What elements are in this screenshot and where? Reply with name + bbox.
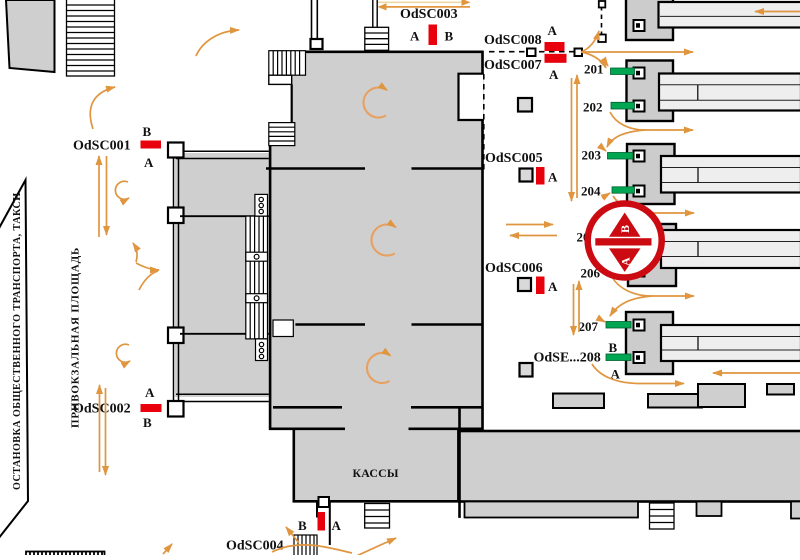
svg-text:A: A — [548, 279, 558, 294]
svg-text:A: A — [548, 23, 558, 38]
svg-text:A: A — [145, 385, 155, 400]
svg-text:OdSC008: OdSC008 — [484, 33, 542, 48]
svg-text:203: 203 — [582, 148, 602, 163]
svg-text:OdSC005: OdSC005 — [485, 151, 543, 166]
svg-text:OdSC006: OdSC006 — [485, 261, 543, 276]
svg-text:B: B — [445, 29, 454, 44]
svg-text:ОСТАНОВКА ОБЩЕСТВЕННОГО ТРАНСП: ОСТАНОВКА ОБЩЕСТВЕННОГО ТРАНСПОРТА, ТАКС… — [12, 192, 23, 490]
svg-text:OdSC007: OdSC007 — [484, 58, 542, 73]
svg-text:OdSE...208: OdSE...208 — [534, 351, 601, 366]
svg-text:207: 207 — [579, 319, 599, 334]
svg-text:B: B — [618, 225, 632, 233]
svg-text:201: 201 — [584, 62, 604, 77]
svg-text:B: B — [609, 340, 618, 355]
svg-text:A: A — [619, 257, 633, 266]
svg-text:B: B — [143, 415, 152, 430]
svg-text:КАССЫ: КАССЫ — [353, 466, 399, 480]
svg-text:OdSC003: OdSC003 — [400, 7, 458, 22]
svg-text:B: B — [143, 124, 152, 139]
svg-text:A: A — [410, 29, 420, 44]
svg-text:B: B — [298, 518, 307, 533]
svg-text:OdSC002: OdSC002 — [73, 402, 131, 417]
svg-text:A: A — [144, 155, 154, 170]
svg-text:A: A — [549, 67, 559, 82]
svg-text:A: A — [332, 518, 342, 533]
svg-text:202: 202 — [583, 100, 603, 115]
svg-text:204: 204 — [581, 184, 601, 199]
svg-text:OdSC001: OdSC001 — [73, 139, 131, 154]
svg-text:A: A — [548, 170, 558, 185]
